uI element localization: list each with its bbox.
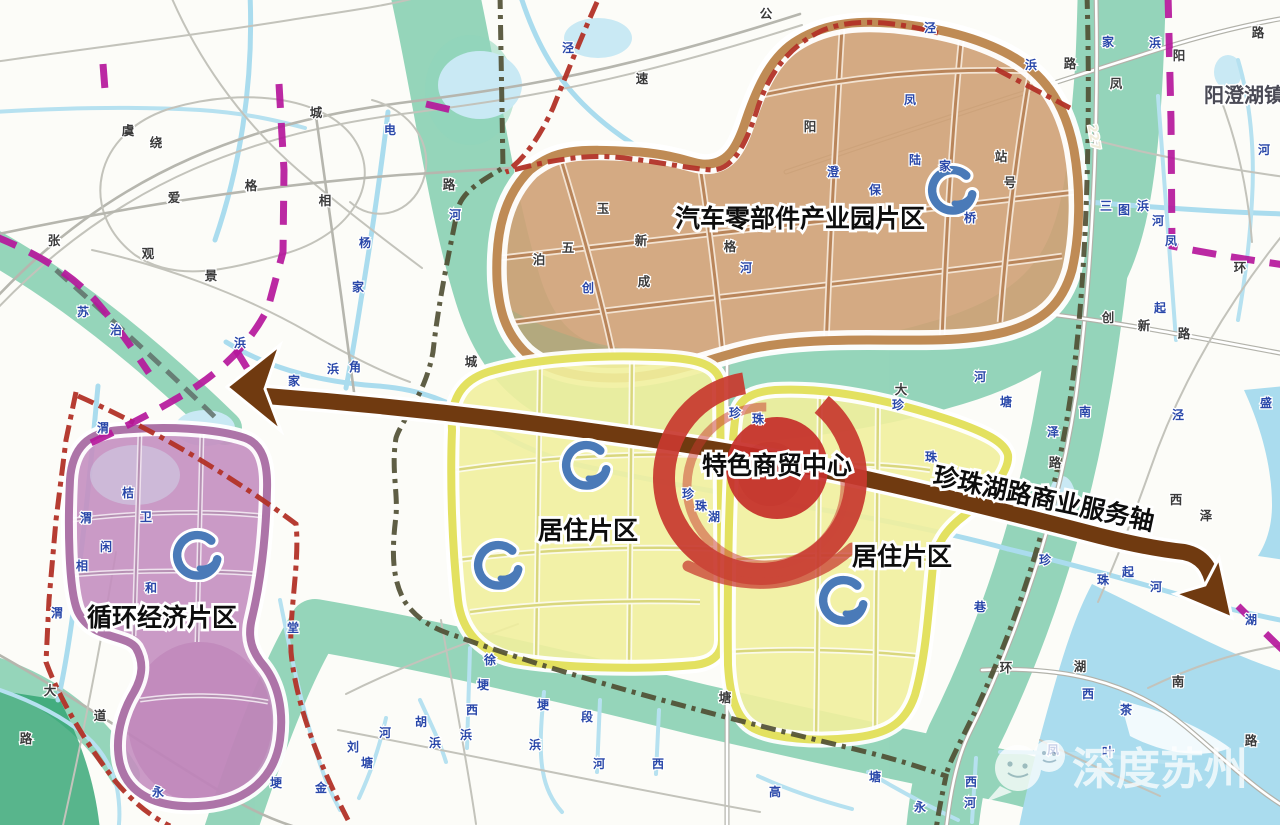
road-label: 阳 [804,119,817,134]
river-label: 河 [1149,579,1162,594]
road-label: 凤 [1110,76,1123,91]
road-label: 道 [94,708,107,723]
river-label: 珠 [752,411,765,426]
river-label: 泾 [562,41,574,55]
watermark-bubble-icon [1033,740,1065,772]
road-label: 五 [562,240,575,255]
road-label: 观 [142,246,155,261]
river-label: 泾 [924,21,936,35]
river-label: 家 [288,373,301,388]
river-label: 家 [1102,34,1115,49]
river-label: 凤 [904,93,916,107]
river-label: 浜 [234,335,246,350]
river-label: 浜 [1025,57,1037,72]
road-label: 西 [1170,492,1183,507]
river-label: 和 [144,580,157,595]
river-label: 桔 [122,485,134,500]
road-label: 路 [20,731,33,746]
watermark-text: 深度苏州 [1072,744,1248,795]
river-label: 河 [973,369,986,384]
river-label: 南 [1079,404,1091,419]
river-label: 相 [76,558,88,573]
road-label: 号 [1004,175,1017,190]
river-label: 泽 [1047,425,1059,439]
road-label: 城 [310,105,323,120]
river-label: 塘 [361,755,373,770]
river-label: 闲 [100,540,112,554]
river-label: 西 [466,703,478,717]
road-label: 路 [1049,455,1062,470]
river-label: 埂 [477,677,490,692]
river-label: 苏 [77,304,89,319]
river-label: 段 [581,709,594,724]
river-label: 珠 [1097,572,1110,587]
road-label: 公 [760,6,773,21]
boundary-magenta-segment [103,64,105,90]
road-label: 阳 [1173,48,1186,63]
label-residential-east: 居住片区 [852,542,952,571]
label-residential-west: 居住片区 [538,516,638,545]
road-label: 新 [635,233,648,248]
river-label: 浜 [529,737,541,752]
river-label: 湖 [708,509,720,524]
river-label: 浜 [1137,198,1149,213]
label-industrial-park: 汽车零部件产业园片区 [675,204,925,233]
road-label: 泽 [1200,508,1213,523]
river-label: 电 [384,122,396,137]
river-label: 泾 [1172,408,1184,422]
road-label: 环 [1000,660,1013,675]
river-label: 珠 [695,498,708,513]
river-label: 杨 [359,235,371,250]
river-label: 陆 [909,152,921,167]
planning-map: 泾泾河浜家浜角电杨家苏治渭渭渭桔卫闲相和堂埂金永珍珠珍珠湖珍珠河塘南泽珍珠起河三… [0,0,1280,825]
river-label: 河 [963,795,976,810]
river-label: 澄 [827,164,840,179]
road-label: 绕 [150,135,163,150]
road-label: 路 [1064,56,1077,71]
road-label: 新 [1138,318,1151,333]
road-label: 虞 [122,123,135,138]
river-label: 起 [1153,300,1167,315]
pond [438,51,522,119]
road-label: 景 [205,268,218,283]
river-label: 埂 [270,775,283,790]
road-label: 路 [1252,25,1265,40]
river-label: 河 [592,756,605,771]
river-label: 永 [913,799,926,814]
road-label: 格 [245,178,258,193]
road-label: 湖 [1074,659,1087,674]
river-label: 凤 [1165,234,1177,248]
river-label: 渭 [51,605,63,620]
road-label: 塘 [719,690,732,705]
road-label: 成 [638,274,651,289]
river-label: 塘 [1000,394,1012,409]
road-label: 相 [319,193,332,208]
river-label: 珍 [892,397,905,412]
river-label: 浜 [460,727,472,742]
river-label: 徐 [483,652,496,667]
river-label: 浜 [327,361,339,376]
river-label: 珍 [1039,552,1052,567]
river-label: 珍 [682,486,695,501]
road-label: 路 [1178,326,1191,341]
river-label: 浜 [429,735,441,750]
river-label: 巷 [973,599,987,614]
river-label: 桥 [964,210,977,225]
river-label: 堂 [287,620,299,635]
road-label: 站 [995,149,1008,164]
road-label: 路 [443,177,456,192]
river-label: 高 [769,784,781,799]
river-label: 金 [314,780,328,795]
road-label: 爱 [168,190,181,205]
river-label: 西 [652,757,664,771]
river-label: 起 [1121,564,1135,579]
river-label: 渭 [97,420,109,435]
river-label: 治 [110,322,122,337]
river-label: 湖 [1245,612,1257,627]
river-label: 埂 [537,697,550,712]
river-label: 塘 [869,769,881,784]
river-label: 盛 [1260,395,1272,410]
road-label: 泊 [533,252,546,267]
river-label: 三 [1100,199,1112,213]
river-label: 河 [378,725,391,740]
river-label: 珍 [729,405,742,420]
road-label: 格 [724,239,737,254]
road-label: 南 [1172,674,1185,689]
river-label: 胡 [415,714,427,729]
river-label: 刘 [347,739,359,754]
river-label: 家 [939,158,952,173]
river-label: 浜 [1149,35,1161,50]
road-label: 张 [48,233,61,248]
river-label: 永 [151,784,164,799]
river-label: 图 [1118,203,1130,217]
label-commerce-center: 特色商贸中心 [702,451,852,480]
river-label: 西 [1082,687,1094,701]
road-label: 大 [895,382,908,397]
river-label: 河 [1151,213,1164,228]
river-label: 渭 [80,510,92,525]
road-label: 玉 [597,201,610,216]
zone-water-patch [90,445,180,505]
river-label: 西 [965,775,977,789]
label-town: 阳澄湖镇 [1204,83,1280,107]
river-label: 河 [448,207,461,222]
zone-lower-lobe [128,642,272,802]
road-label: 创 [1101,310,1115,325]
river-label: 保 [868,182,882,197]
road-label: 城 [465,354,478,369]
planning-map-canvas: 泾泾河浜家浜角电杨家苏治渭渭渭桔卫闲相和堂埂金永珍珠珍珠湖珍珠河塘南泽珍珠起河三… [0,0,1280,825]
river-label: 茶 [1119,702,1133,717]
river-label: 创 [581,280,594,295]
river-label: 角 [349,359,361,374]
pond [564,18,632,58]
river-label: 家 [352,279,365,294]
river-label: 河 [739,260,752,275]
label-circular-economy: 循环经济片区 [87,603,237,632]
road-label: 大 [44,683,57,698]
road-label: 速 [636,71,649,86]
road-label: 环 [1234,260,1247,275]
river-label: 河 [1257,142,1270,157]
river-label: 卫 [140,510,152,524]
